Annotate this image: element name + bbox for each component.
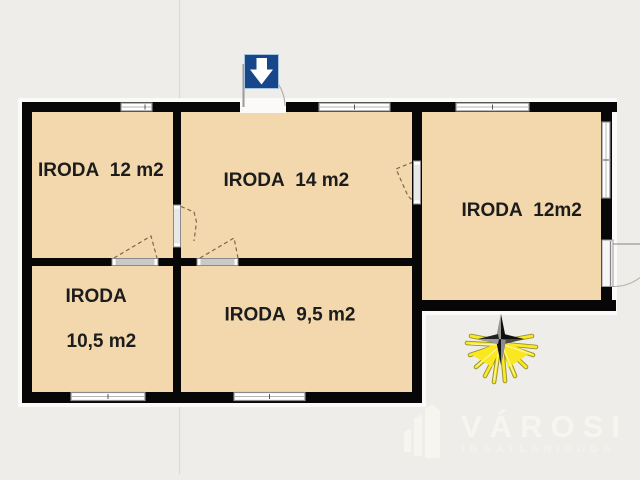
svg-text:VÁROSI: VÁROSI [461, 409, 628, 444]
svg-text:10,5 m2: 10,5 m2 [67, 331, 137, 352]
svg-text:IRODA 14 m2: IRODA 14 m2 [224, 170, 350, 191]
svg-text:IRODA: IRODA [66, 286, 128, 307]
svg-text:IRODA 12m2: IRODA 12m2 [462, 200, 582, 221]
svg-text:IRODA 9,5 m2: IRODA 9,5 m2 [225, 305, 356, 326]
svg-text:INGATLANIRODA: INGATLANIRODA [462, 443, 616, 455]
svg-text:IRODA 12 m2: IRODA 12 m2 [38, 160, 164, 181]
